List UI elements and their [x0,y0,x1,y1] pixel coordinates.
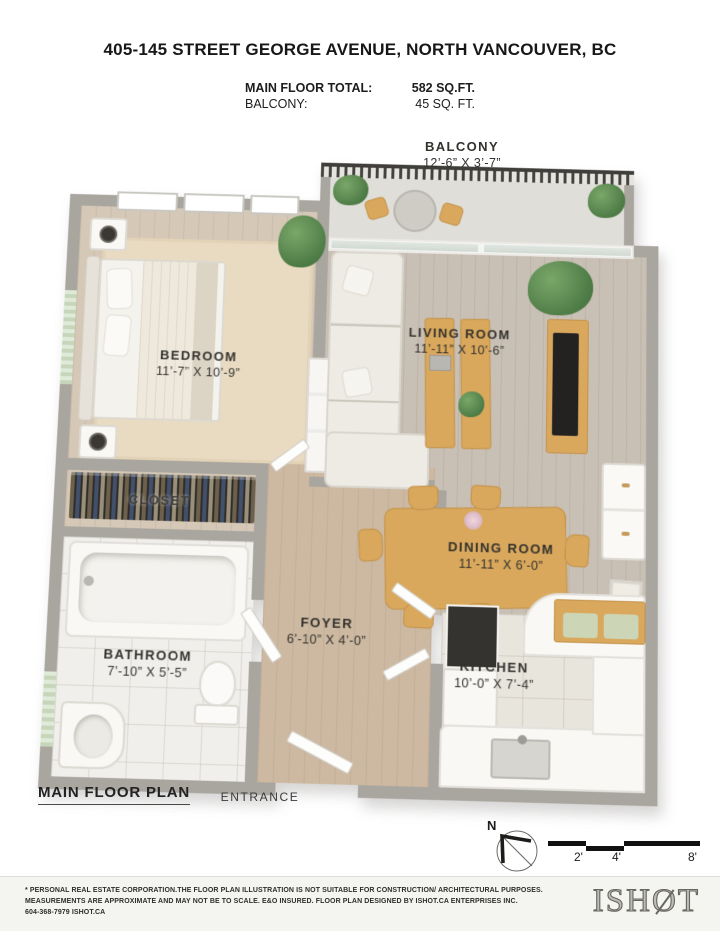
summary-row: MAIN FLOOR TOTAL: 582 SQ.FT. [245,80,475,96]
summary-label: MAIN FLOOR TOTAL: [245,80,372,96]
summary-value: 582 SQ.FT. [383,80,475,96]
summary-row: BALCONY: 45 SQ. FT. [245,96,475,112]
sink-basin [73,714,114,759]
plan-title: MAIN FLOOR PLAN [38,784,190,805]
room-label-closet: CLOSET [114,491,205,509]
summary-value: 45 SQ. FT. [383,96,475,112]
pillow [341,366,373,398]
ishot-logo: ISHOT [593,883,700,920]
scale-tick: 8' [688,850,697,864]
faucet-icon [518,735,527,745]
sofa-chaise [324,431,430,490]
contact-info: 604-368-7979 ISHOT.CA [25,908,543,919]
dining-chair [408,485,439,510]
scale-tick: 2' [574,850,583,864]
disclaimer: * PERSONAL REAL ESTATE CORPORATION.THE F… [25,886,543,919]
floor-plan-drawing: LIVING ROOM 11’-11” X 10’-6” BEDROOM 11’… [38,156,659,807]
tv [552,333,579,436]
sideboard [601,463,646,561]
scale-tick: 4' [612,850,621,864]
room-label-bathroom: BATHROOM 7’-10” X 5’-5” [73,645,222,681]
drawer-handle [622,532,630,536]
footer: * PERSONAL REAL ESTATE CORPORATION.THE F… [0,876,720,931]
scale-segment [624,841,700,846]
entrance-label: ENTRANCE [196,790,324,804]
bar-seat [604,614,639,640]
bathtub-basin [78,552,237,626]
disclaimer-line: * PERSONAL REAL ESTATE CORPORATION.THE F… [25,886,543,897]
disclaimer-line: MEASUREMENTS ARE APPROXIMATE AND MAY NOT… [25,897,543,908]
room-label-balcony: BALCONY 12’-6” X 3’-7” [337,139,587,170]
logo-text: ISH [593,883,652,919]
dining-chair [358,528,384,561]
book [429,355,451,371]
room-label-living-room: LIVING ROOM 11’-11” X 10’-6” [380,324,539,359]
kitchen-bar [554,599,646,645]
toilet-tank [193,704,239,726]
bedroom-window [250,195,300,215]
room-label-dining-room: DINING ROOM 11’-11” X 6’-0” [410,538,593,575]
bathtub [65,541,250,642]
scale-bar: 2' 4' 8' [548,841,700,869]
scale-segment [548,841,586,846]
logo-o: O [652,883,678,920]
kitchen-counter-right [592,656,646,737]
summary-label: BALCONY: [245,96,308,112]
logo-text: T [678,883,700,919]
bedroom-window [183,193,245,214]
pillow [106,268,133,310]
glass-pane [483,243,632,257]
bedroom-window [116,191,178,212]
area-summary: MAIN FLOOR TOTAL: 582 SQ.FT. BALCONY: 45… [0,80,720,112]
plant-icon [527,260,593,316]
dining-chair [470,485,501,511]
room-label-kitchen: KITCHEN 10’-0” X 7’-4” [412,657,576,694]
north-arrow-icon [490,826,542,878]
bar-seat [563,613,598,639]
page-title: 405-145 STREET GEORGE AVENUE, NORTH VANC… [0,40,720,60]
room-label-foyer: FOYER 6’-10” X 4’-0” [250,613,404,649]
compass: N [486,820,546,880]
wall [645,246,658,806]
bathroom-sink [58,701,127,770]
room-label-bedroom: BEDROOM 11’-7” X 10’-9” [118,346,278,381]
plant-icon [588,183,625,218]
drawer-handle [622,483,630,487]
floor-plan-page: 405-145 STREET GEORGE AVENUE, NORTH VANC… [0,0,720,931]
kitchen-sink [490,738,550,780]
bed [78,256,228,424]
